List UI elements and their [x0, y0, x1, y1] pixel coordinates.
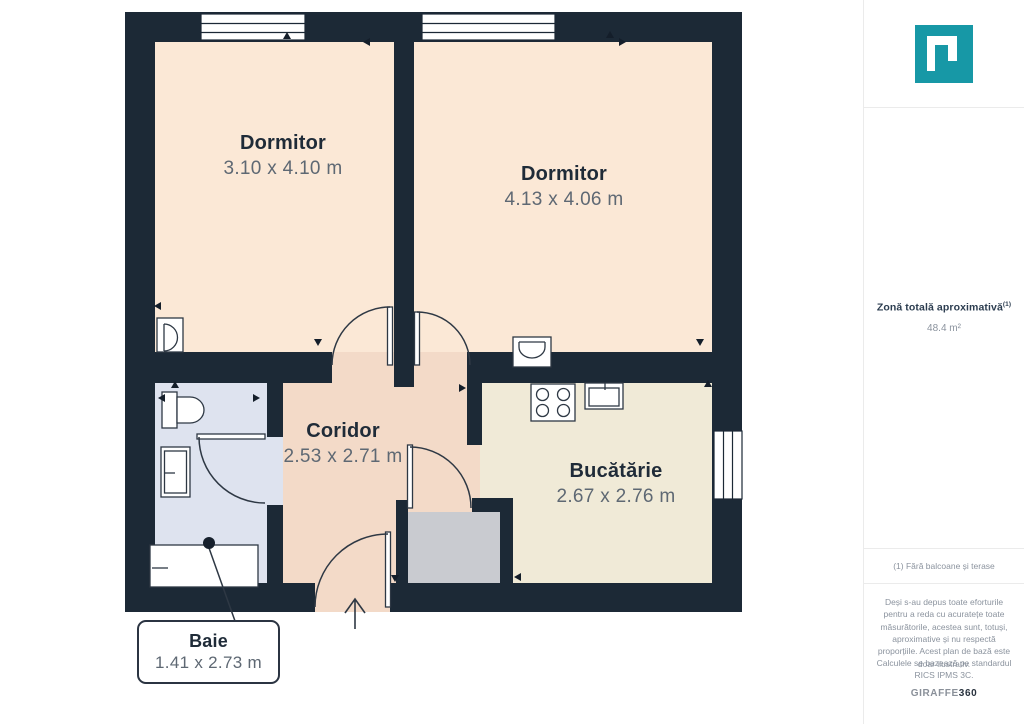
total-area-label: Zonă totală aproximativă(1): [864, 301, 1024, 314]
standard-note-text: Calculele se bazează pe standardul RICS …: [864, 657, 1024, 682]
total-area-block: Zonă totală aproximativă(1) 48.4 m²: [864, 301, 1024, 334]
brand-logo-icon: [915, 25, 973, 83]
brand-name-part2: 360: [959, 688, 978, 699]
room-name: Baie: [189, 631, 228, 652]
floor-layer: [140, 25, 730, 612]
logo-section: [864, 0, 1024, 108]
room-dimensions: 1.41 x 2.73 m: [155, 653, 262, 673]
total-area-value: 48.4 m²: [864, 323, 1024, 334]
total-area-text: Zonă totală aproximativă: [877, 302, 1003, 314]
floor-plan-drawing: [0, 0, 863, 724]
brand-wordmark: GIRAFFE360: [864, 688, 1024, 699]
divider: [864, 548, 1024, 549]
floor-plan-canvas: Dormitor 3.10 x 4.10 m Dormitor 4.13 x 4…: [0, 0, 863, 724]
total-area-footnote-marker: (1): [1003, 301, 1011, 308]
room-label-bathroom-callout: Baie 1.41 x 2.73 m: [137, 620, 280, 684]
footnote-text: (1) Fără balcoane și terase: [864, 560, 1024, 572]
divider: [864, 583, 1024, 584]
brand-name-part1: GIRAFFE: [911, 688, 959, 699]
info-sidebar: Zonă totală aproximativă(1) 48.4 m² (1) …: [863, 0, 1024, 724]
